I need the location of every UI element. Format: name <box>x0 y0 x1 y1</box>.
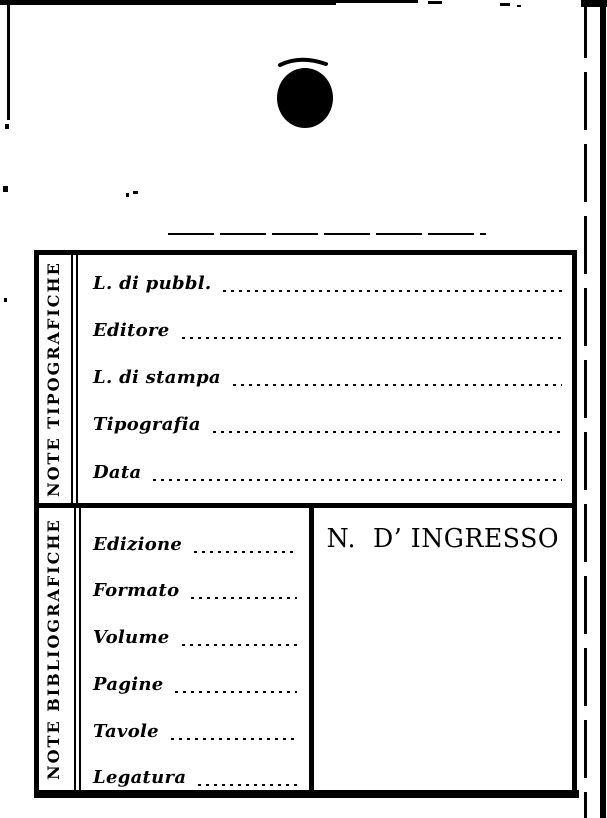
field-dotted-line[interactable] <box>175 691 297 693</box>
scan-edge-line-broken <box>584 0 587 818</box>
field-dotted-line[interactable] <box>198 784 297 786</box>
field-label-legatura: Legatura <box>93 766 198 790</box>
field-row: Editore <box>93 319 562 343</box>
punch-hole <box>268 48 342 132</box>
field-row: L. di pubbl. <box>93 272 562 296</box>
field-label-editore: Editore <box>93 319 182 343</box>
field-label-formato: Formato <box>93 579 191 603</box>
field-dotted-line[interactable] <box>182 644 297 646</box>
scan-speck <box>4 298 7 302</box>
field-row: Formato <box>93 579 297 603</box>
scan-speck <box>517 5 521 7</box>
scan-speck <box>126 193 129 197</box>
double-rule <box>74 508 81 790</box>
field-dotted-line[interactable] <box>223 290 562 292</box>
field-label-edizione: Edizione <box>93 533 194 557</box>
scan-edge-left <box>7 0 10 120</box>
field-dotted-line[interactable] <box>233 384 562 386</box>
field-row: Volume <box>93 626 297 650</box>
scan-speck <box>133 191 138 194</box>
field-label-data: Data <box>93 461 153 485</box>
field-label-pagine: Pagine <box>93 673 175 697</box>
table-border-top <box>34 250 577 255</box>
field-row: Pagine <box>93 673 297 697</box>
scan-speck <box>5 2 12 5</box>
scan-speck <box>500 3 510 6</box>
punch-hole-circle <box>277 68 333 128</box>
scan-speck <box>3 186 8 192</box>
field-dotted-line[interactable] <box>194 551 297 553</box>
scan-line-artifact <box>168 233 486 235</box>
field-row: L. di stampa <box>93 366 562 390</box>
field-label-l-di-stampa: L. di stampa <box>93 366 233 390</box>
field-dotted-line[interactable] <box>213 431 562 433</box>
field-row: Edizione <box>93 533 297 557</box>
table-border-bottom <box>34 790 579 798</box>
table-border-right <box>572 250 577 798</box>
scan-speck <box>5 124 9 129</box>
scan-edge-top <box>0 0 336 5</box>
field-label-tavole: Tavole <box>93 720 171 744</box>
field-row: Tipografia <box>93 413 562 437</box>
field-row: Data <box>93 461 562 485</box>
field-row: Tavole <box>93 720 297 744</box>
field-label-tipografia: Tipografia <box>93 413 213 437</box>
field-dotted-line[interactable] <box>182 337 563 339</box>
accession-number-box[interactable]: N. D’ INGRESSO <box>314 508 572 790</box>
field-label-l-di-pubbl: L. di pubbl. <box>93 272 223 296</box>
accession-number-label: N. D’ INGRESSO <box>327 524 559 554</box>
section-header-bibliografiche: NOTE BIBLIOGRAFICHE <box>38 510 70 788</box>
scan-edge-top <box>336 0 418 3</box>
field-dotted-line[interactable] <box>171 738 297 740</box>
punch-hole-arc <box>280 60 326 65</box>
field-dotted-line[interactable] <box>191 597 297 599</box>
field-row: Legatura <box>93 766 297 790</box>
double-rule <box>71 255 78 503</box>
scan-edge-line-solid <box>600 0 606 818</box>
field-label-volume: Volume <box>93 626 182 650</box>
scan-edge-top <box>428 1 442 4</box>
library-catalog-card-scan: NOTE TIPOGRAFICHE L. di pubbl. Editore L… <box>0 0 607 818</box>
section-header-tipografiche: NOTE TIPOGRAFICHE <box>38 257 70 501</box>
field-dotted-line[interactable] <box>153 479 562 481</box>
